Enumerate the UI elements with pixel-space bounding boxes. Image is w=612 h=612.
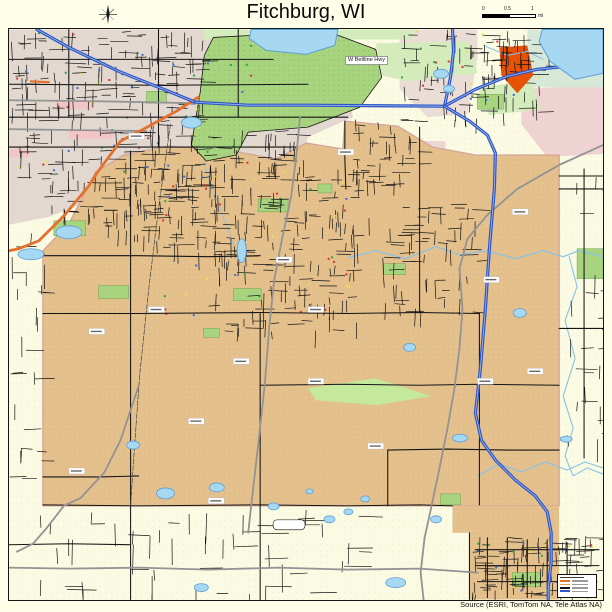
map-header: Fitchburg, WI 0 0.5 1 mi	[0, 0, 612, 28]
scale-label: 1	[531, 6, 534, 12]
map-frame: W Beltline Hwy	[8, 28, 604, 601]
map-mini-legend	[557, 574, 597, 598]
scale-unit: mi	[538, 13, 543, 19]
legend-swatch	[560, 584, 570, 586]
legend-swatch	[560, 580, 570, 582]
legend-text-smudge	[572, 580, 588, 581]
scale-bar: 0 0.5 1 mi	[482, 5, 558, 23]
legend-row	[560, 590, 594, 593]
legend-swatch	[560, 590, 570, 592]
legend-text-smudge	[572, 584, 588, 585]
source-attribution: Source (ESRI, TomTom NA, Tele Atlas NA)	[460, 600, 602, 609]
map-page: Fitchburg, WI 0 0.5 1 mi W Beltline Hwy …	[0, 0, 612, 612]
legend-text-smudge	[560, 577, 584, 578]
map-canvas	[9, 29, 603, 600]
scale-label: 0	[482, 6, 485, 12]
scale-label: 0.5	[504, 6, 511, 12]
scale-bar-segment	[509, 14, 536, 18]
legend-text-smudge	[572, 587, 588, 588]
scale-bar-segment	[482, 14, 509, 18]
road-label-beltline: W Beltline Hwy	[345, 56, 388, 65]
legend-text-smudge	[572, 591, 588, 592]
legend-swatch	[560, 587, 570, 589]
